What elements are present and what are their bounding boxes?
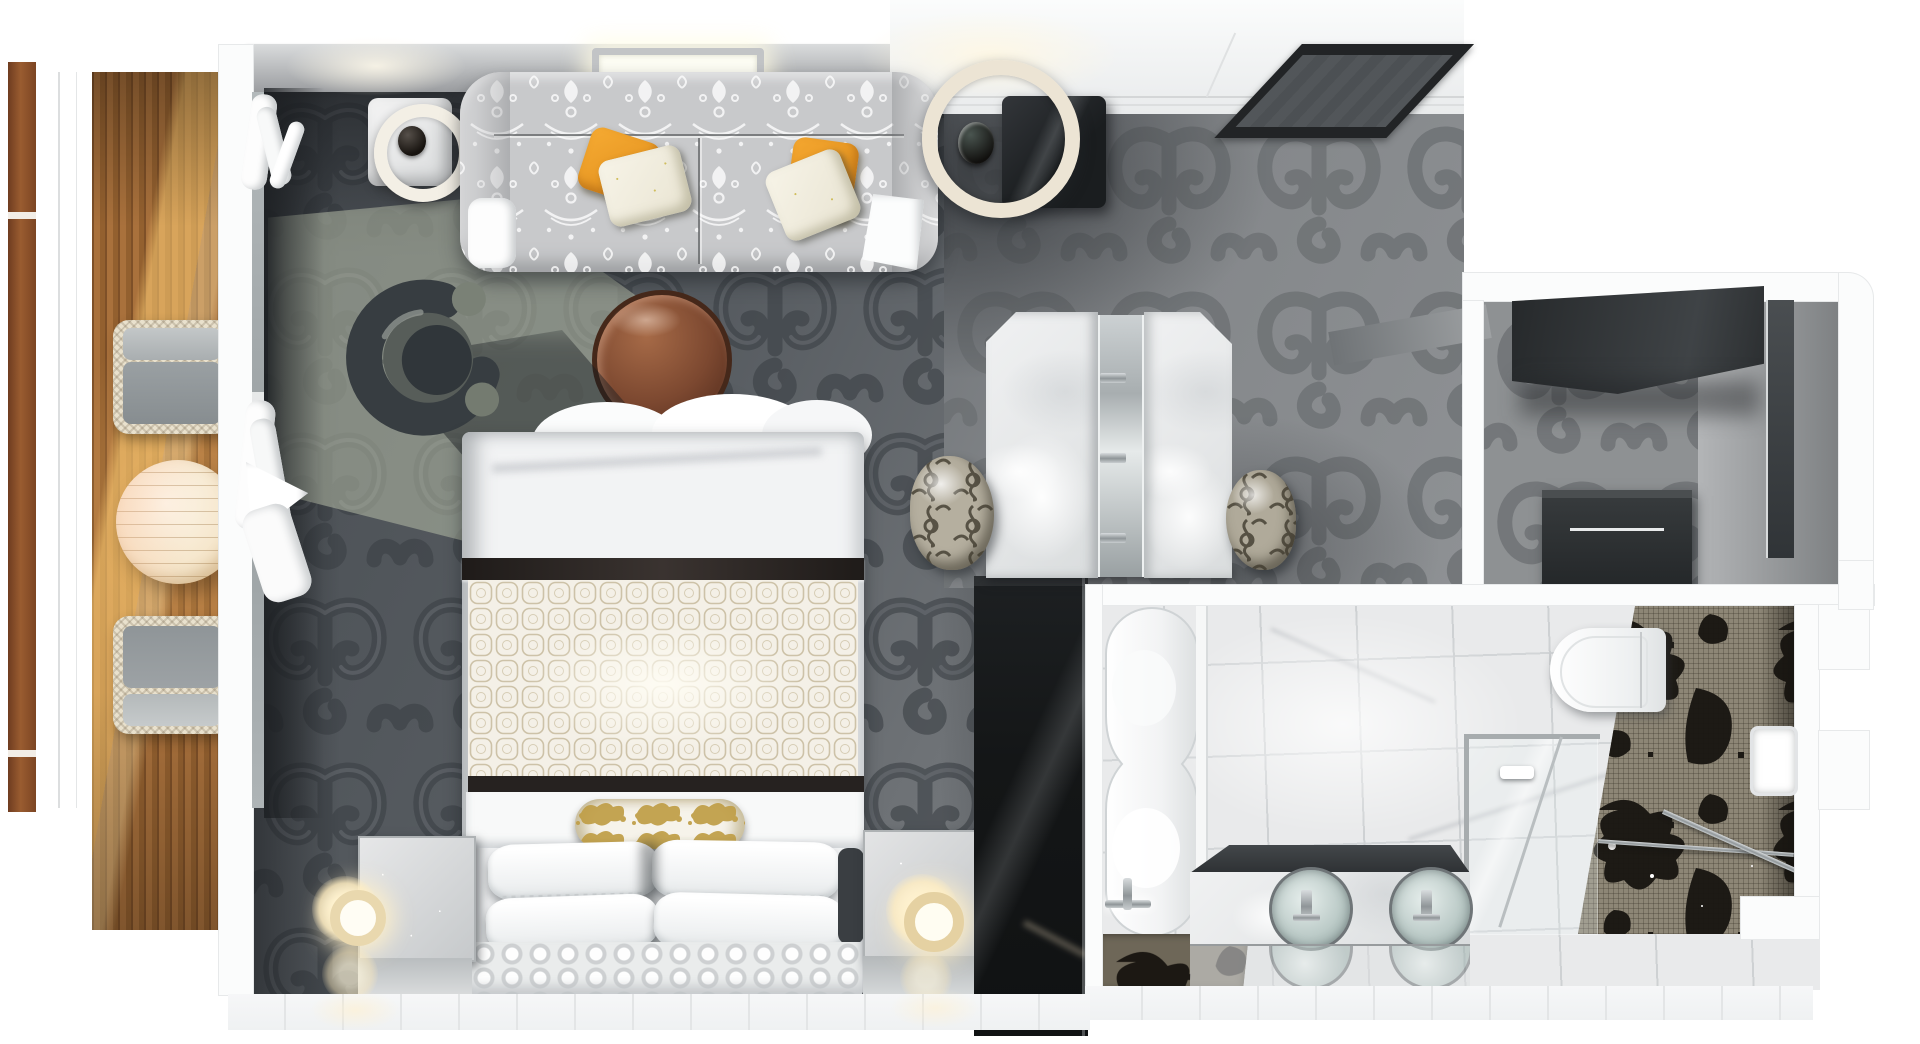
toilet-seat-line	[1560, 636, 1648, 708]
deck-bottom-edge	[92, 930, 218, 970]
closet-wall-left	[1462, 300, 1484, 592]
wall-glow	[286, 36, 466, 96]
bedroom-wall-bottom	[228, 994, 1090, 1030]
dresser-sheen	[974, 576, 1088, 1036]
mirror-mount	[1100, 453, 1126, 463]
bathroom	[1085, 584, 1885, 1024]
bed	[462, 396, 864, 996]
toilet	[1550, 628, 1666, 712]
railing-joint	[8, 212, 36, 219]
closet-wall-right	[1838, 272, 1874, 606]
sink-faucet-handle	[1293, 914, 1320, 921]
toilet-tank-seam	[1640, 632, 1642, 708]
stool-damask-pattern	[910, 456, 994, 570]
chair-seat-cushion	[123, 626, 221, 688]
wardrobe-shadow	[1520, 380, 1760, 416]
wicker-chair	[113, 616, 231, 734]
console-top-face	[1542, 490, 1692, 498]
bathroom-wall-top	[1085, 584, 1875, 606]
marble-glow	[1144, 462, 1234, 572]
chair-seat-cushion	[123, 362, 221, 424]
wall-mounted-plaque	[1750, 726, 1798, 796]
sink-reflection	[1389, 946, 1470, 988]
sofa-throw-blanket	[862, 194, 924, 270]
tub-faucet-riser	[1123, 878, 1132, 910]
lattice-quilt	[468, 580, 858, 776]
ring-table-lamp	[374, 104, 472, 202]
vanity-desk-left-panel	[986, 312, 1098, 578]
railing-joint	[8, 750, 36, 757]
floorplan-render	[0, 0, 1920, 1044]
console-handle	[1570, 528, 1664, 531]
wicker-chair	[113, 320, 231, 434]
table-specular	[611, 303, 681, 337]
ceiling-seam-diagonal	[1206, 33, 1236, 98]
dark-accent-pillow	[838, 848, 864, 944]
nightstand-mirror-base	[358, 958, 472, 996]
railing-gap-line	[58, 72, 60, 808]
balcony	[0, 0, 230, 1044]
mirror-mount	[1100, 533, 1126, 543]
bed-runner-band	[462, 558, 864, 580]
stool-damask-pattern	[1226, 470, 1296, 570]
sofa-back-seam	[494, 134, 904, 136]
bathroom-wall-bottom	[1085, 986, 1813, 1020]
vanity-mirror-reflection	[1190, 946, 1470, 988]
mirror-door-panel	[1766, 300, 1794, 558]
ring-floor-lamp	[922, 60, 1080, 218]
quilt-lattice-pattern	[468, 580, 858, 776]
wall-step	[1818, 604, 1870, 670]
walk-in-closet	[1440, 260, 1890, 610]
textured-head-blanket	[470, 942, 862, 994]
shower-handle	[1500, 766, 1534, 779]
shower-frame-top	[1464, 734, 1600, 739]
railing-gap-line	[76, 72, 77, 808]
bed-pillow	[487, 841, 658, 901]
chair-back-cushion	[123, 694, 221, 726]
nightstand-lamp	[330, 890, 386, 946]
balcony-railing	[8, 62, 36, 812]
wall-corner-block	[1740, 896, 1820, 940]
nightstand-lamp	[904, 892, 964, 952]
wine-bottle	[398, 126, 426, 156]
bed-runner-band	[468, 776, 864, 792]
sofa-cushion-seam	[698, 138, 700, 264]
mirror-mount	[1100, 373, 1126, 383]
marble-glow	[992, 432, 1092, 562]
wall-step	[1838, 560, 1874, 610]
vanity-stool	[1226, 470, 1296, 570]
drawer-console	[1542, 490, 1692, 588]
desk-mirror-divider	[1098, 315, 1144, 577]
vanity-desk-right-panel	[1144, 312, 1232, 578]
nightstand-mirror-base	[863, 956, 983, 996]
sink-reflection	[1269, 946, 1353, 988]
sofa	[460, 72, 938, 272]
chair-back-cushion	[123, 328, 221, 360]
black-dresser	[974, 576, 1088, 1036]
bathroom-wall-left	[1085, 584, 1103, 996]
wall-step	[1818, 730, 1870, 810]
sink-faucet-handle	[1413, 914, 1440, 921]
vanity-stool	[910, 456, 994, 570]
